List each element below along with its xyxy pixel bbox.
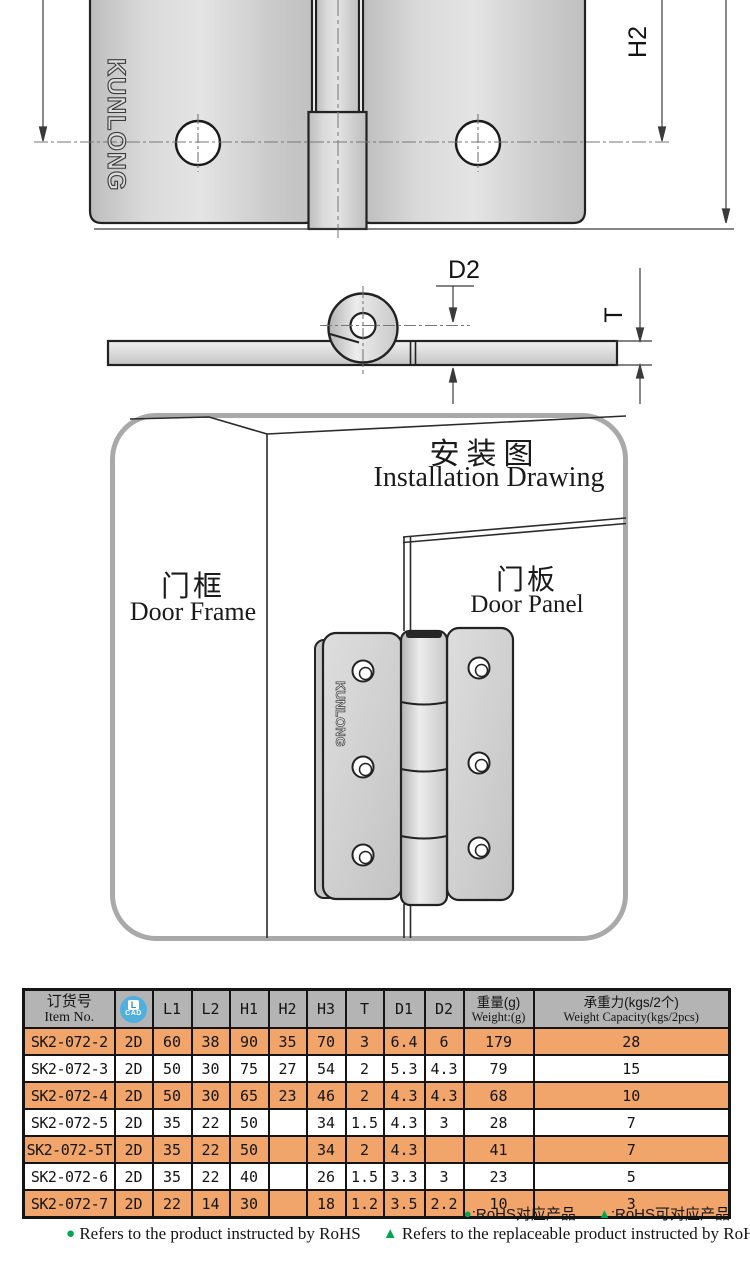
product-spec-sheet: { "brand": { "logo_text": "KUNLONG" }, "… [0,0,750,1269]
cell-t: 2 [346,1055,384,1082]
col-header-cad: L CAD [115,990,153,1029]
col-header-capacity: 承重力(kgs/2个) Weight Capacity(kgs/2pcs) [534,990,730,1029]
rohs-dot-icon-en: ● [66,1226,75,1242]
cell-d2: 4.3 [425,1055,464,1082]
cell-l1: 22 [153,1190,192,1218]
spec-table-header-row: 订货号 Item No. L CAD L1 L2 H1 H2 H3 T D1 D… [24,990,730,1029]
cell-h1: 30 [230,1190,269,1218]
table-row: SK2-072-52D352250341.54.33287 [24,1109,730,1136]
cell-item: SK2-072-5 [24,1109,115,1136]
cell-l1: 50 [153,1082,192,1109]
cell-l2: 38 [192,1028,230,1055]
door-panel-label-en: Door Panel [446,591,608,619]
cell-l1: 35 [153,1163,192,1190]
cell-d2: 3 [425,1109,464,1136]
col-header-h3: H3 [307,990,346,1029]
cell-weight: 179 [464,1028,534,1055]
cell-h2 [269,1136,307,1163]
cell-item: SK2-072-7 [24,1190,115,1218]
cell-t: 1.5 [346,1163,384,1190]
cell-h3: 46 [307,1082,346,1109]
cell-d2: 3 [425,1163,464,1190]
cell-item: SK2-072-4 [24,1082,115,1109]
rohs-tri-label-en: Refers to the replaceable product instru… [402,1224,750,1243]
cell-capacity: 7 [534,1109,730,1136]
cell-l2: 14 [192,1190,230,1218]
col-header-d1: D1 [384,990,425,1029]
installation-hinge-3d: KUNLONG [315,628,513,905]
cell-d1: 4.3 [384,1109,425,1136]
cell-cad: 2D [115,1055,153,1082]
brand-logo-hinge-3d: KUNLONG [333,681,348,747]
cell-l1: 35 [153,1136,192,1163]
col-header-item: 订货号 Item No. [24,990,115,1029]
cell-capacity: 7 [534,1136,730,1163]
cad-icon: L CAD [120,996,147,1023]
table-row: SK2-072-32D503075275425.34.37915 [24,1055,730,1082]
cell-weight: 79 [464,1055,534,1082]
cell-l2: 30 [192,1055,230,1082]
cell-h3: 34 [307,1136,346,1163]
cell-item: SK2-072-6 [24,1163,115,1190]
rohs-legend-en: ● Refers to the product instructed by Ro… [66,1224,750,1244]
rohs-dot-label-en: Refers to the product instructed by RoHS [79,1224,360,1243]
cell-h2: 35 [269,1028,307,1055]
rohs-triangle-icon-en: ▲ [383,1226,398,1242]
col-header-h2: H2 [269,990,307,1029]
cell-d2: 6 [425,1028,464,1055]
cell-item: SK2-072-3 [24,1055,115,1082]
rohs-triangle-icon: ▲ [598,1206,611,1221]
col-header-t: T [346,990,384,1029]
spec-table-body: SK2-072-22D603890357036.4617928SK2-072-3… [24,1028,730,1218]
cell-h1: 40 [230,1163,269,1190]
cell-h2: 27 [269,1055,307,1082]
cell-l1: 60 [153,1028,192,1055]
cell-h1: 90 [230,1028,269,1055]
cell-weight: 68 [464,1082,534,1109]
cell-h3: 34 [307,1109,346,1136]
cell-t: 1.5 [346,1109,384,1136]
cell-h3: 54 [307,1055,346,1082]
cell-h3: 70 [307,1028,346,1055]
rohs-tri-label-zh: :RoHS可对应产品 [611,1206,730,1223]
rohs-legend-zh: ●:RoHS对应产品▲:RoHS可对应产品 [464,1203,730,1224]
cell-item: SK2-072-5T [24,1136,115,1163]
cell-cad: 2D [115,1190,153,1218]
cell-h2 [269,1109,307,1136]
cell-t: 2 [346,1082,384,1109]
rohs-dot-label-zh: :RoHS对应产品 [472,1206,576,1223]
cell-cad: 2D [115,1028,153,1055]
cell-capacity: 5 [534,1163,730,1190]
cell-l1: 35 [153,1109,192,1136]
cell-h2 [269,1163,307,1190]
dim-label-t: T [600,307,628,322]
cell-d1: 6.4 [384,1028,425,1055]
dim-label-h2: H2 [624,26,652,58]
cell-l2: 30 [192,1082,230,1109]
table-row: SK2-072-42D503065234624.34.36810 [24,1082,730,1109]
col-header-weight: 重量(g) Weight:(g) [464,990,534,1029]
cell-l2: 22 [192,1163,230,1190]
table-row: SK2-072-62D352240261.53.33235 [24,1163,730,1190]
cell-cad: 2D [115,1136,153,1163]
col-header-h1: H1 [230,990,269,1029]
cell-cad: 2D [115,1082,153,1109]
hinge-front-view: KUNLONG [34,0,670,238]
cell-h1: 50 [230,1136,269,1163]
cell-d2 [425,1136,464,1163]
cell-cad: 2D [115,1109,153,1136]
cell-d1: 4.3 [384,1082,425,1109]
cell-h2: 23 [269,1082,307,1109]
col-header-l1: L1 [153,990,192,1029]
cell-t: 3 [346,1028,384,1055]
cell-d1: 3.3 [384,1163,425,1190]
cell-capacity: 15 [534,1055,730,1082]
cell-h3: 18 [307,1190,346,1218]
rohs-dot-icon: ● [464,1206,472,1221]
cell-d1: 3.5 [384,1190,425,1218]
cell-l2: 22 [192,1109,230,1136]
cell-cad: 2D [115,1163,153,1190]
side-view-dimensions: D2 T [436,256,652,404]
cell-h3: 26 [307,1163,346,1190]
cell-h1: 50 [230,1109,269,1136]
cell-h1: 75 [230,1055,269,1082]
cell-l2: 22 [192,1136,230,1163]
cell-h2 [269,1190,307,1218]
cell-capacity: 10 [534,1082,730,1109]
brand-logo-front-view: KUNLONG [102,58,130,191]
door-frame-label-en: Door Frame [106,597,280,627]
spec-table: 订货号 Item No. L CAD L1 L2 H1 H2 H3 T D1 D… [22,988,731,1219]
table-row: SK2-072-5T2D3522503424.3417 [24,1136,730,1163]
hinge-side-view [108,286,617,374]
cell-t: 1.2 [346,1190,384,1218]
cell-d1: 5.3 [384,1055,425,1082]
col-header-l2: L2 [192,990,230,1029]
cell-capacity: 28 [534,1028,730,1055]
cell-d2: 4.3 [425,1082,464,1109]
col-header-d2: D2 [425,990,464,1029]
dim-label-d2: D2 [448,256,480,284]
cell-h1: 65 [230,1082,269,1109]
cell-weight: 23 [464,1163,534,1190]
cell-t: 2 [346,1136,384,1163]
cell-weight: 28 [464,1109,534,1136]
cell-weight: 41 [464,1136,534,1163]
cell-l1: 50 [153,1055,192,1082]
cell-item: SK2-072-2 [24,1028,115,1055]
installation-title-en: Installation Drawing [330,462,648,494]
table-row: SK2-072-22D603890357036.4617928 [24,1028,730,1055]
cell-d1: 4.3 [384,1136,425,1163]
cell-d2: 2.2 [425,1190,464,1218]
